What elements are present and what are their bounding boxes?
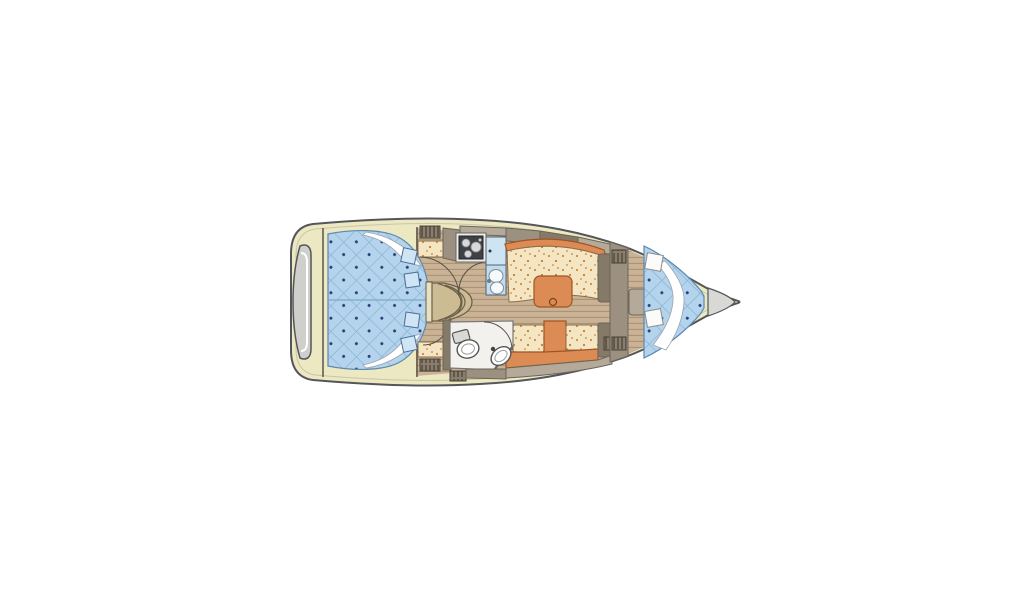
page-background [0,0,1024,600]
steps-landing [426,282,432,322]
aft-pillow-1 [401,248,418,265]
stove-burner-2 [471,242,481,252]
seat-cushion-top [418,241,443,257]
anchor-locker-bow [708,288,735,316]
v-berth-pillow-1 [645,253,664,272]
aft-pillow-3 [404,312,420,328]
locker-louver-bottom [420,359,440,371]
stove-knob [479,239,482,242]
sink-basin-1 [489,270,503,283]
bulkhead-vent-top [612,250,626,263]
v-berth-pillow-2 [645,309,664,328]
locker-louver-top [420,226,440,238]
locker-below-head [466,369,506,379]
sink-basin-2 [491,282,504,294]
salon-table [534,276,572,307]
settee-bottom-cushion-2 [566,325,598,350]
boat-floor-plan [0,0,1024,600]
swim-platform [293,245,311,359]
bulkhead-vent-bottom [612,337,626,350]
aft-pillow-4 [401,336,418,353]
stove-burner-3 [465,251,472,258]
vberth-step [629,289,645,315]
swim-platform-shape [293,245,311,359]
locker-louver-head [450,371,466,381]
aft-pillow-2 [404,272,420,288]
sink-faucet [487,279,491,283]
v-berth-cabin [610,242,704,362]
head [443,320,515,381]
stove-burner-1 [462,239,470,247]
settee-bottom-cushion-1 [513,325,544,352]
settee-armrest-top [598,254,611,302]
basin-faucet [491,347,495,351]
lid-handle [489,250,492,253]
